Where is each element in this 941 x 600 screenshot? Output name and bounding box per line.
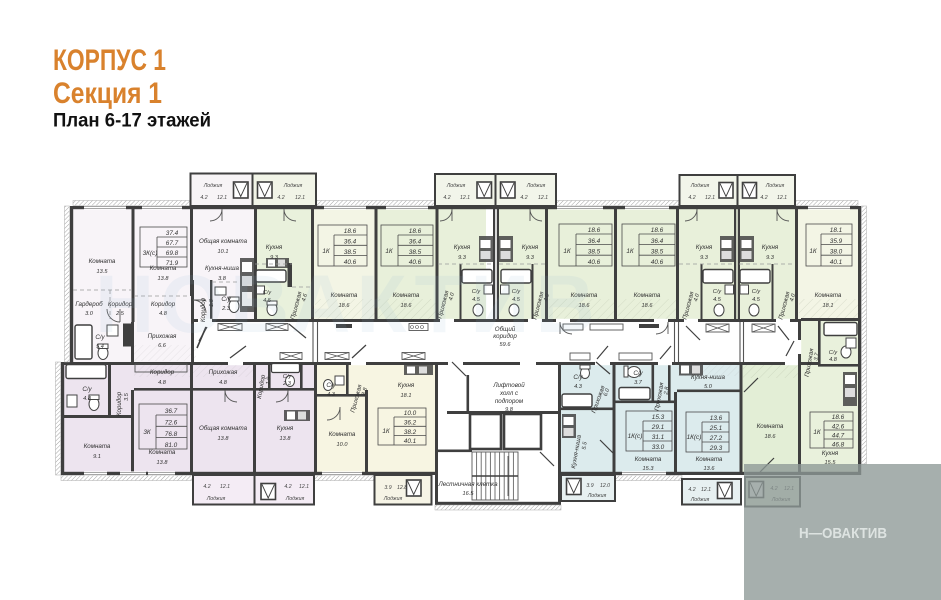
- svg-text:Кухня: Кухня: [454, 244, 471, 251]
- svg-text:18.1: 18.1: [401, 393, 412, 399]
- svg-text:81.0: 81.0: [165, 442, 178, 449]
- svg-text:5.0: 5.0: [704, 384, 713, 390]
- svg-text:4.2: 4.2: [277, 195, 284, 201]
- svg-text:10.0: 10.0: [337, 442, 349, 448]
- svg-text:13.8: 13.8: [218, 436, 230, 442]
- svg-text:Общая комната: Общая комната: [199, 425, 248, 432]
- svg-text:1К: 1К: [809, 248, 818, 255]
- svg-text:38.5: 38.5: [344, 249, 357, 256]
- svg-text:Секция 1: Секция 1: [53, 77, 162, 110]
- svg-text:С/у: С/у: [829, 350, 839, 356]
- svg-text:Кухня: Кухня: [522, 244, 539, 251]
- svg-text:Комната: Комната: [635, 456, 662, 463]
- svg-text:Комната: Комната: [149, 449, 176, 456]
- svg-text:С/у: С/у: [82, 386, 92, 393]
- svg-text:Лоджия: Лоджия: [526, 183, 546, 189]
- svg-text:4.2: 4.2: [203, 484, 210, 490]
- svg-text:Лестничная клетка: Лестничная клетка: [437, 481, 498, 488]
- svg-text:9.3: 9.3: [700, 255, 709, 261]
- svg-text:Лифтовой: Лифтовой: [492, 382, 525, 389]
- svg-text:3.5: 3.5: [124, 392, 130, 401]
- svg-text:холл с: холл с: [499, 390, 519, 397]
- svg-text:Комната: Комната: [84, 443, 111, 450]
- svg-text:44.7: 44.7: [832, 433, 845, 440]
- svg-text:12.1: 12.1: [299, 484, 309, 490]
- svg-text:12.1: 12.1: [538, 195, 548, 201]
- svg-text:1К(с): 1К(с): [687, 434, 702, 441]
- svg-text:36.2: 36.2: [404, 420, 417, 427]
- svg-text:Комната: Комната: [329, 431, 356, 438]
- svg-text:План 6-17 этажей: План 6-17 этажей: [53, 111, 211, 132]
- svg-text:12.1: 12.1: [701, 487, 711, 493]
- svg-text:12.1: 12.1: [295, 195, 305, 201]
- svg-text:1К(с): 1К(с): [628, 433, 643, 440]
- svg-text:Кухня: Кухня: [762, 244, 779, 251]
- svg-text:36.4: 36.4: [409, 239, 422, 246]
- svg-text:36.4: 36.4: [651, 238, 664, 245]
- svg-text:Лоджия: Лоджия: [383, 496, 403, 502]
- svg-text:36.7: 36.7: [165, 408, 178, 415]
- svg-text:9.3: 9.3: [766, 255, 775, 261]
- svg-text:4.5: 4.5: [752, 297, 761, 303]
- svg-text:Лоджия: Лоджия: [690, 183, 710, 189]
- svg-text:Общая комната: Общая комната: [199, 238, 248, 245]
- svg-text:18.6: 18.6: [409, 228, 422, 235]
- svg-text:38.5: 38.5: [651, 249, 664, 256]
- svg-text:С/у: С/у: [573, 374, 583, 381]
- svg-text:12.1: 12.1: [460, 195, 470, 201]
- svg-text:С/у: С/у: [752, 289, 762, 295]
- svg-text:12.1: 12.1: [220, 484, 230, 490]
- svg-text:3.0: 3.0: [85, 311, 94, 317]
- svg-text:4.2: 4.2: [520, 195, 527, 201]
- svg-text:Лоджия: Лоджия: [206, 496, 226, 502]
- svg-text:С/у: С/у: [633, 370, 643, 377]
- svg-text:18.6: 18.6: [588, 227, 601, 234]
- svg-text:1К: 1К: [322, 248, 331, 255]
- svg-text:Лоджия: Лоджия: [283, 183, 303, 189]
- svg-text:15.3: 15.3: [652, 414, 665, 421]
- svg-text:13.8: 13.8: [280, 436, 292, 442]
- svg-text:40.6: 40.6: [651, 259, 664, 266]
- svg-text:12.8: 12.8: [397, 485, 407, 491]
- svg-text:67.7: 67.7: [166, 240, 179, 247]
- svg-text:1К: 1К: [813, 429, 822, 436]
- svg-text:4.2: 4.2: [284, 484, 291, 490]
- svg-text:2.3: 2.3: [282, 381, 292, 387]
- svg-text:18.6: 18.6: [344, 228, 357, 235]
- svg-text:46.8: 46.8: [832, 442, 845, 449]
- svg-text:10.1: 10.1: [218, 249, 229, 255]
- svg-text:Кухня: Кухня: [398, 382, 415, 389]
- svg-text:29.1: 29.1: [651, 424, 665, 431]
- svg-text:12.1: 12.1: [217, 195, 227, 201]
- svg-text:25.1: 25.1: [709, 425, 723, 432]
- svg-text:4.8: 4.8: [219, 380, 228, 386]
- svg-text:16.5: 16.5: [463, 491, 475, 497]
- svg-text:Лоджия: Лоджия: [690, 497, 710, 503]
- svg-text:18.1: 18.1: [823, 303, 834, 309]
- svg-text:40.1: 40.1: [404, 438, 417, 445]
- svg-text:Лоджия: Лоджия: [587, 493, 607, 499]
- svg-text:4.2: 4.2: [688, 487, 695, 493]
- svg-text:4.5: 4.5: [713, 297, 722, 303]
- svg-text:Комната: Комната: [757, 423, 784, 430]
- svg-text:Комната: Комната: [634, 292, 661, 299]
- svg-text:13.6: 13.6: [710, 415, 723, 422]
- svg-text:Кухня: Кухня: [822, 450, 839, 457]
- svg-text:3.9: 3.9: [384, 485, 391, 491]
- svg-text:3К(с): 3К(с): [143, 250, 158, 257]
- svg-text:Комната: Комната: [815, 292, 842, 299]
- svg-text:3К: 3К: [143, 429, 152, 436]
- svg-text:36.4: 36.4: [344, 239, 357, 246]
- svg-text:37.4: 37.4: [166, 230, 179, 237]
- svg-text:КОРПУС 1: КОРПУС 1: [53, 44, 166, 77]
- svg-text:С/у: С/у: [713, 289, 723, 295]
- svg-text:1К: 1К: [563, 248, 572, 255]
- svg-text:38.2: 38.2: [404, 429, 417, 436]
- svg-text:Прихожая: Прихожая: [209, 369, 238, 376]
- svg-text:13.8: 13.8: [157, 460, 169, 466]
- svg-text:18.6: 18.6: [832, 414, 845, 421]
- svg-text:подпором: подпором: [495, 398, 524, 405]
- svg-text:9.8: 9.8: [505, 407, 514, 413]
- svg-text:Лоджия: Лоджия: [203, 183, 223, 189]
- svg-text:4.2: 4.2: [688, 195, 695, 201]
- svg-text:4.8: 4.8: [83, 396, 92, 402]
- svg-text:4.8: 4.8: [829, 357, 838, 363]
- svg-text:31.1: 31.1: [652, 434, 665, 441]
- svg-text:33.0: 33.0: [652, 444, 665, 451]
- svg-text:18.6: 18.6: [765, 434, 777, 440]
- svg-text:10.0: 10.0: [404, 410, 417, 417]
- svg-text:18.6: 18.6: [642, 303, 654, 309]
- svg-text:Лоджия: Лоджия: [285, 496, 305, 502]
- svg-text:72.6: 72.6: [165, 420, 178, 427]
- svg-text:Кухня: Кухня: [696, 244, 713, 251]
- svg-text:9.1: 9.1: [93, 454, 101, 460]
- svg-text:18.1: 18.1: [830, 227, 843, 234]
- svg-text:4.2: 4.2: [760, 195, 767, 201]
- svg-text:Кухня: Кухня: [277, 425, 294, 432]
- svg-text:4.8: 4.8: [158, 380, 167, 386]
- svg-text:3.7: 3.7: [634, 380, 643, 386]
- svg-text:1К: 1К: [382, 428, 391, 435]
- svg-text:12.1: 12.1: [777, 195, 787, 201]
- svg-text:12.0: 12.0: [600, 483, 610, 489]
- svg-text:38.5: 38.5: [409, 249, 422, 256]
- svg-text:4.2: 4.2: [200, 195, 207, 201]
- svg-text:15.3: 15.3: [643, 466, 655, 472]
- svg-text:36.4: 36.4: [588, 238, 601, 245]
- svg-text:35.9: 35.9: [830, 238, 843, 245]
- svg-text:4.3: 4.3: [327, 392, 336, 398]
- svg-text:НОВАКТИВ: НОВАКТИВ: [95, 259, 601, 350]
- svg-text:Коридор: Коридор: [150, 369, 175, 376]
- svg-text:1К: 1К: [626, 248, 635, 255]
- svg-text:40.1: 40.1: [830, 259, 843, 266]
- svg-text:Лоджия: Лоджия: [765, 183, 785, 189]
- svg-text:42.6: 42.6: [832, 424, 845, 431]
- svg-text:29.3: 29.3: [709, 445, 723, 452]
- svg-text:38.0: 38.0: [830, 249, 843, 256]
- svg-text:4.3: 4.3: [574, 384, 583, 390]
- svg-text:4.2: 4.2: [443, 195, 450, 201]
- svg-text:С/у: С/у: [283, 374, 293, 380]
- svg-text:Коридор: Коридор: [116, 391, 123, 416]
- svg-text:69.8: 69.8: [166, 250, 179, 257]
- svg-text:Лоджия: Лоджия: [446, 183, 466, 189]
- svg-text:12.1: 12.1: [705, 195, 715, 201]
- svg-text:38.5: 38.5: [588, 249, 601, 256]
- svg-text:76.8: 76.8: [165, 431, 178, 438]
- svg-text:1К: 1К: [385, 248, 394, 255]
- svg-text:Кухня-ниша: Кухня-ниша: [691, 374, 726, 381]
- svg-text:С/у: С/у: [326, 382, 336, 389]
- svg-text:3.9: 3.9: [586, 483, 593, 489]
- svg-text:Комната: Комната: [696, 456, 723, 463]
- svg-text:27.2: 27.2: [709, 435, 723, 442]
- svg-text:Н—ОВАКТИВ: Н—ОВАКТИВ: [799, 525, 887, 542]
- svg-text:18.6: 18.6: [651, 227, 664, 234]
- svg-text:Кухня: Кухня: [266, 244, 283, 251]
- svg-text:13.6: 13.6: [704, 466, 716, 472]
